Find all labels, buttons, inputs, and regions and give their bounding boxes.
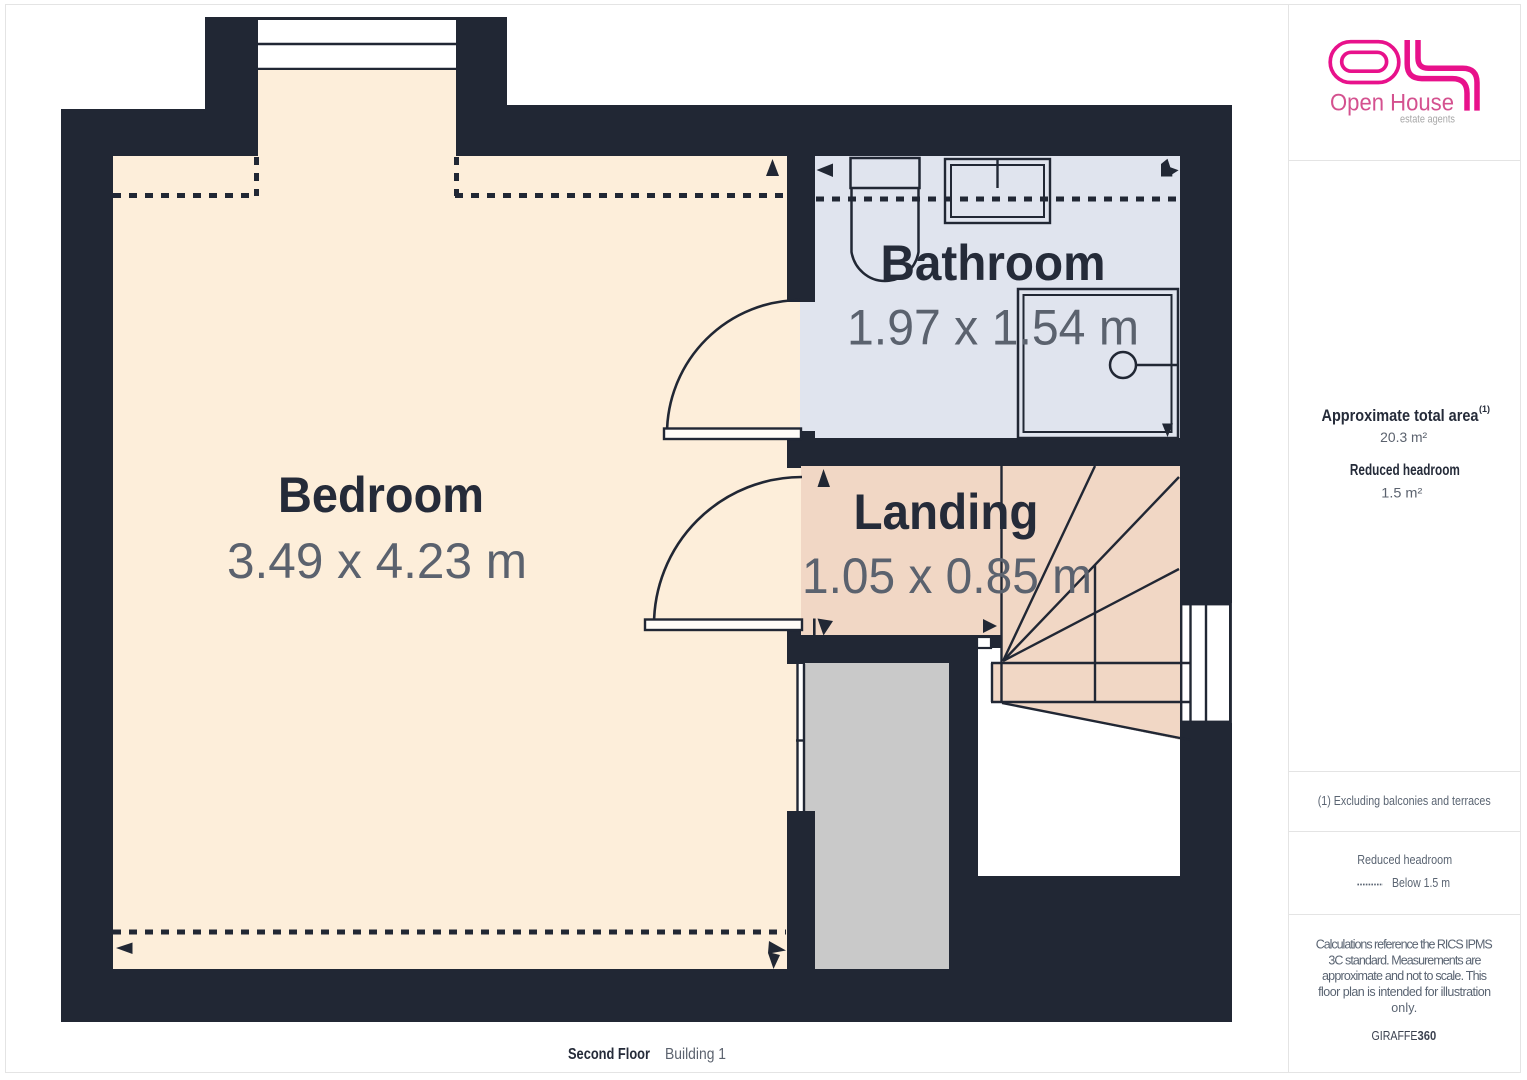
svg-text:1.5 m²: 1.5 m² <box>1381 486 1423 501</box>
svg-text:Building 1: Building 1 <box>665 1046 726 1063</box>
svg-text:Landing: Landing <box>854 484 1039 540</box>
svg-text:1.97 x 1.54 m: 1.97 x 1.54 m <box>847 300 1139 356</box>
svg-text:estate agents: estate agents <box>1400 114 1455 126</box>
svg-text:GIRAFFE: GIRAFFE <box>1372 1029 1418 1043</box>
svg-text:approximate and not to scale.: approximate and not to scale. This <box>1322 969 1487 983</box>
svg-text:Open House: Open House <box>1330 90 1454 117</box>
svg-text:Reduced headroom: Reduced headroom <box>1350 462 1460 479</box>
svg-text:Approximate total area: Approximate total area <box>1322 407 1480 425</box>
svg-text:3.49 x 4.23 m: 3.49 x 4.23 m <box>227 533 527 589</box>
svg-text:(1): (1) <box>1479 404 1490 414</box>
svg-text:Bathroom: Bathroom <box>881 235 1106 291</box>
svg-text:Below 1.5 m: Below 1.5 m <box>1392 876 1450 890</box>
svg-text:20.3 m²: 20.3 m² <box>1380 430 1428 445</box>
svg-text:1.05 x 0.85 m: 1.05 x 0.85 m <box>802 548 1092 604</box>
svg-text:only.: only. <box>1391 1001 1417 1015</box>
svg-text:Bedroom: Bedroom <box>278 467 484 523</box>
svg-text:Reduced headroom: Reduced headroom <box>1357 853 1452 867</box>
svg-text:floor plan is intended for ill: floor plan is intended for illustration <box>1318 985 1491 999</box>
svg-text:(1) Excluding balconies and te: (1) Excluding balconies and terraces <box>1318 794 1491 808</box>
svg-text:360: 360 <box>1418 1029 1437 1043</box>
svg-text:Calculations reference the RIC: Calculations reference the RICS IPMS <box>1316 938 1493 952</box>
svg-text:3C standard. Measurements are: 3C standard. Measurements are <box>1328 953 1481 967</box>
svg-text:Second Floor: Second Floor <box>568 1046 650 1063</box>
